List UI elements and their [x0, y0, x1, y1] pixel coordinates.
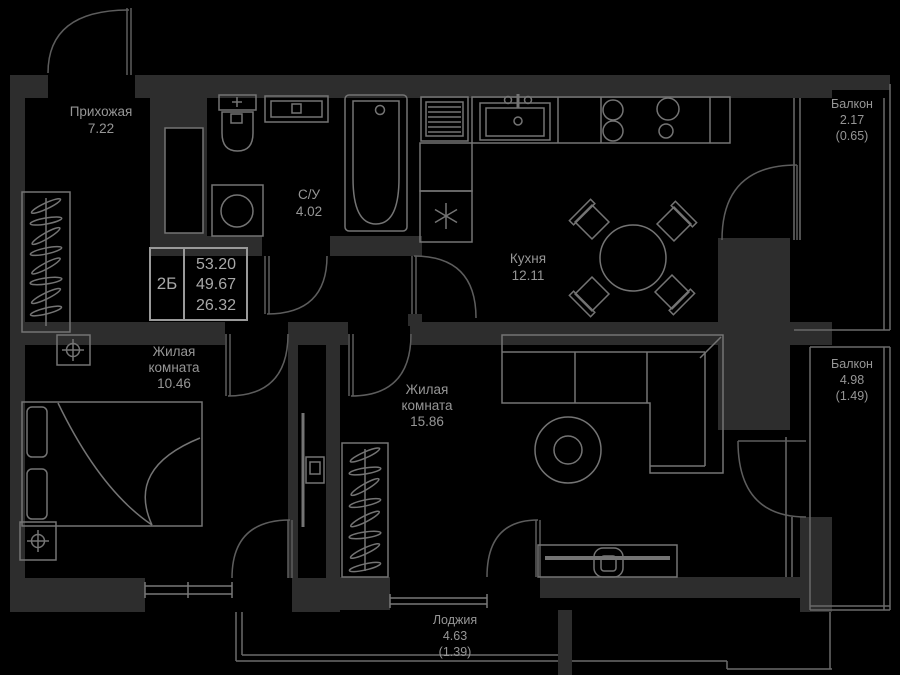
dining-chair [655, 201, 697, 243]
kitchen-door [412, 256, 476, 318]
bed [22, 402, 202, 526]
duct-shaft [165, 128, 203, 233]
stove [603, 98, 679, 141]
living-room-window [390, 594, 487, 608]
bathtub [345, 95, 407, 231]
bedroom-door [226, 334, 288, 396]
fridge [421, 97, 468, 141]
nightstand [20, 522, 56, 560]
room-label-bathroom: С/У 4.02 [296, 186, 322, 220]
room-label-kitchen: Кухня 12.11 [510, 250, 546, 284]
bedroom-window [145, 582, 232, 598]
unit-area-total: 53.20 [196, 257, 236, 273]
floor-plan [0, 0, 900, 675]
hallway-wardrobe [22, 192, 70, 332]
tv-unit [303, 413, 324, 527]
label-balcony-top: Балкон 2.17 (0.65) [831, 96, 873, 144]
unit-area-rooms: 26.32 [196, 298, 236, 314]
dining-chair [569, 275, 611, 317]
dining-chair [569, 199, 611, 241]
dining-table [600, 225, 666, 291]
toilet [219, 95, 256, 151]
label-balcony-right: Балкон 4.98 (1.49) [831, 356, 873, 404]
kitchen-balcony-door [722, 165, 797, 240]
living-loggia-door [487, 520, 540, 577]
living-balcony-door [738, 441, 806, 517]
floor-plan-page: Прихожая 7.22 С/У 4.02 Кухня 12.11 Жилая… [0, 0, 900, 675]
bathroom-sink [265, 96, 328, 122]
bathroom-door [265, 256, 327, 314]
room-label-bedroom: Жилая комната 10.46 [128, 344, 220, 392]
washing-machine [212, 185, 263, 236]
desk [538, 545, 677, 577]
kitchen-sink [480, 94, 550, 140]
kitchen-shaft-cells [420, 143, 472, 242]
label-loggia: Лоджия 4.63 (1.39) [433, 612, 477, 660]
entrance-door [48, 8, 131, 75]
room-label-living-room: Жилая комната 15.86 [381, 382, 473, 430]
unit-area-living: 49.67 [196, 277, 236, 293]
desk-chair [594, 548, 623, 577]
unit-type: 2Б [157, 274, 178, 294]
sconce-icon [27, 530, 49, 552]
living-wardrobe [342, 443, 388, 577]
bedroom-loggia-door [232, 520, 292, 578]
vent-asterisk-icon [435, 203, 457, 229]
room-label-hallway: Прихожая 7.22 [70, 103, 133, 137]
coffee-table [535, 417, 601, 483]
